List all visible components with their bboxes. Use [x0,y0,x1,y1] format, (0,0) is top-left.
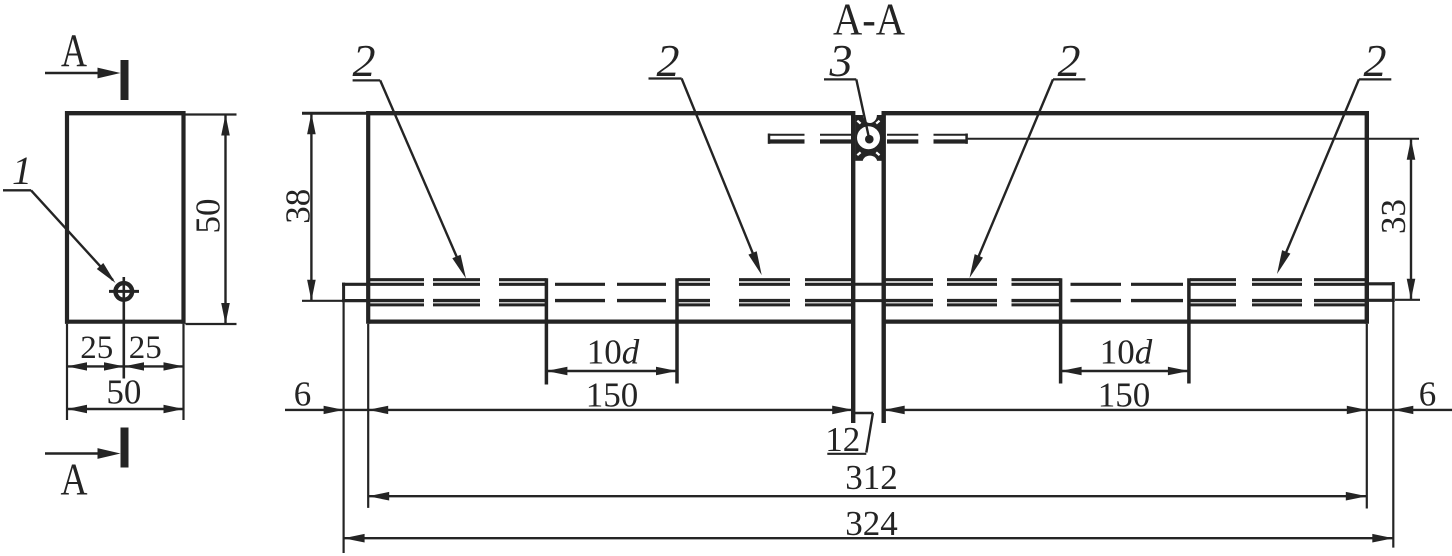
svg-text:33: 33 [1374,199,1413,234]
svg-text:324: 324 [845,504,898,543]
svg-text:150: 150 [586,376,639,415]
svg-text:12: 12 [825,420,860,459]
svg-text:A: A [61,25,87,77]
svg-text:38: 38 [278,189,317,224]
svg-text:312: 312 [845,458,898,497]
svg-text:1: 1 [12,148,32,193]
svg-text:25: 25 [80,330,113,366]
svg-text:50: 50 [106,373,141,412]
svg-text:6: 6 [1419,375,1437,414]
svg-text:50: 50 [188,199,227,234]
svg-text:6: 6 [294,375,312,414]
svg-text:25: 25 [129,330,162,366]
svg-text:A: A [61,455,88,505]
svg-text:10d: 10d [587,333,640,372]
svg-text:10d: 10d [1100,333,1153,372]
svg-text:150: 150 [1098,376,1151,415]
svg-text:2: 2 [353,35,376,86]
